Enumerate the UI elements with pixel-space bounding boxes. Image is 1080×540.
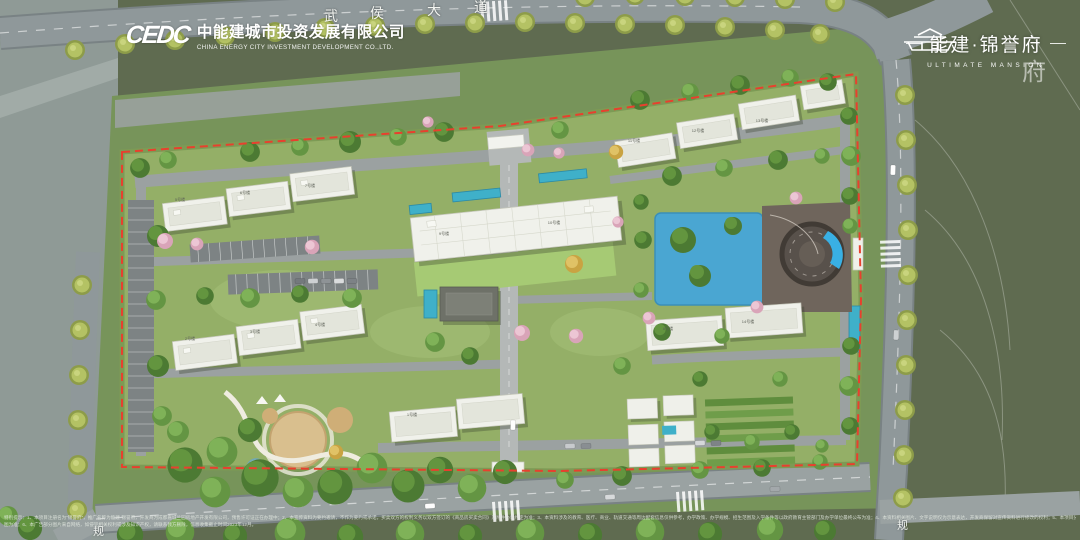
decorative-line [1050, 43, 1066, 44]
building-label: 11号楼 [628, 138, 640, 144]
legal-disclaimer: 特别提示：1、本项目注册名为“锦誉府”，推广名称为能建·锦誉府，开发商为成都嘉城… [4, 515, 1076, 528]
building-label: 8号楼 [663, 326, 673, 332]
building-label: 10号楼 [548, 220, 560, 226]
disclaimer-line-2: 图为准；6、本广告部分图片来自网络，如侵犯相关权利或涉及知识产权，请联系我方删除… [4, 522, 1076, 529]
project-logo: 能建·锦誉府 ULTIMATE MANSION [898, 26, 1074, 69]
road-label-char: 武 [324, 6, 338, 26]
masterplan-rendering: CEDC 中能建城市投资发展有限公司 CHINA ENERGY CITY INV… [0, 0, 1080, 540]
developer-logo: CEDC 中能建城市投资发展有限公司 CHINA ENERGY CITY INV… [126, 20, 405, 51]
building-label: 13号楼 [756, 118, 768, 124]
clubhouse-pool [424, 290, 437, 318]
building-label: 9号楼 [439, 231, 449, 237]
building-label: 5号楼 [175, 197, 185, 203]
building-label: 12号楼 [692, 128, 704, 134]
watermark-char: 府 [1022, 52, 1046, 87]
swimming-pool [655, 213, 763, 305]
building-label: 3号楼 [250, 329, 260, 335]
building-label: 1号楼 [407, 412, 417, 418]
developer-logo-mark: CEDC [124, 20, 190, 50]
building-label: 2号楼 [185, 336, 195, 342]
building-label: 4号楼 [315, 322, 325, 328]
disclaimer-line-1: 特别提示：1、本项目注册名为“锦誉府”，推广名称为能建·锦誉府，开发商为成都嘉城… [4, 515, 1076, 522]
amenity-pool-area [655, 202, 863, 312]
road-label-char: 道 [474, 0, 488, 17]
mansion-roof-icon [898, 26, 962, 54]
road-label-char: 大 [427, 0, 441, 20]
building-label: 6号楼 [240, 190, 250, 196]
site-plan-artwork [0, 0, 1080, 540]
road-label-char: 侯 [370, 3, 384, 23]
west-road [79, 252, 88, 540]
developer-name-cn: 中能建城市投资发展有限公司 [197, 20, 405, 42]
east-gate [853, 238, 863, 270]
building-label: 14号楼 [742, 319, 754, 325]
developer-name-en: CHINA ENERGY CITY INVESTMENT DEVELOPMENT… [197, 44, 405, 51]
building-label: 7号楼 [305, 183, 315, 189]
